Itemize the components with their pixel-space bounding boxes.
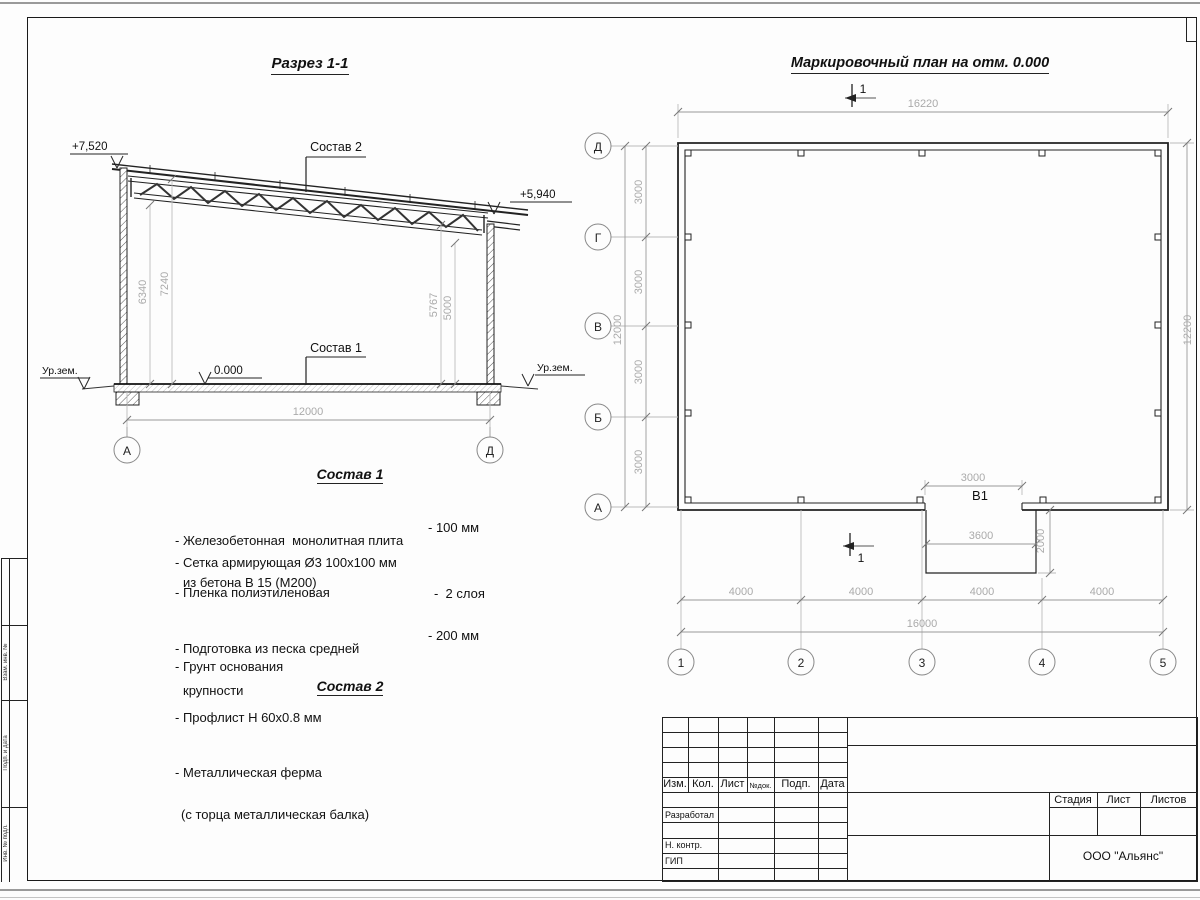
axis-row-a: А <box>594 501 602 515</box>
elev-0000: 0.000 <box>199 365 262 384</box>
foundation-left <box>116 392 139 405</box>
sostav2-item2: - Металлическая ферма (с торца металличе… <box>175 738 369 822</box>
dim-4000-2: 4000 <box>849 586 873 598</box>
tb-header-podp: Подп. <box>774 778 818 790</box>
svg-text:Состав 1: Состав 1 <box>310 341 362 355</box>
section-mark-top: 1 <box>845 82 876 107</box>
axis-bubble-d: Д <box>486 444 494 458</box>
plan-top-dim: 16220 <box>674 98 1172 138</box>
elev-7520: +7,520 <box>70 141 128 168</box>
dim-3000-opening: 3000 <box>961 472 985 484</box>
foundation-right <box>477 392 500 405</box>
dim-3600: 3600 <box>969 530 993 542</box>
dim-16220: 16220 <box>908 98 939 110</box>
dim-3000-2: 3000 <box>633 270 645 294</box>
tb-header-data: Дата <box>818 778 847 790</box>
section-mark-bottom: 1 <box>843 533 874 565</box>
sostav2-item1: - Профлист Н 60х0.8 мм <box>175 711 322 725</box>
ground-label-left: Ур.зем. <box>40 365 90 389</box>
dim-3000-1: 3000 <box>633 180 645 204</box>
svg-text:Ур.зем.: Ур.зем. <box>42 365 78 377</box>
dim-4000-1: 4000 <box>729 586 753 598</box>
dim-12000-section: 12000 <box>293 406 324 418</box>
axis-row-d: Д <box>594 140 602 154</box>
axis-col-5: 5 <box>1160 656 1167 670</box>
dim-3000-3: 3000 <box>633 360 645 384</box>
svg-text:Состав 2: Состав 2 <box>310 140 362 154</box>
sostav1-item3-value: - 2 слоя <box>434 586 485 601</box>
sostav1-item4-value: - 200 мм <box>428 628 479 643</box>
svg-text:+5,940: +5,940 <box>520 189 556 201</box>
svg-text:1: 1 <box>858 551 865 565</box>
dim-16000: 16000 <box>907 618 938 630</box>
dim-2000: 2000 <box>1035 529 1047 553</box>
plan-wall-inner <box>685 150 1161 503</box>
axis-row-v: В <box>594 320 602 334</box>
axis-bubble-a: А <box>123 444 131 458</box>
tb-stage: Стадия <box>1049 794 1097 806</box>
section-span-dim: 12000 <box>123 392 494 427</box>
svg-text:0.000: 0.000 <box>214 365 243 377</box>
sostav2-leader: Состав 2 <box>306 140 366 192</box>
dim-7240: 7240 <box>159 272 171 296</box>
dim-12200: 12200 <box>1182 315 1194 346</box>
tb-role-gip: ГИП <box>665 856 683 866</box>
column-marks <box>685 150 1161 503</box>
floor-slab <box>114 384 501 392</box>
tb-header-ndok: №док. <box>747 781 774 790</box>
plan-bottom-grid: 4000 4000 4000 4000 16000 1 2 3 4 5 <box>668 510 1176 675</box>
sostav1-item2: - Сетка армирующая Ø3 100х100 мм <box>175 556 397 570</box>
svg-text:1: 1 <box>860 82 867 96</box>
axis-col-4: 4 <box>1039 656 1046 670</box>
plan-left-grid: 12000 3000 3000 3000 3000 Д Г В Б А <box>585 133 678 520</box>
axis-col-3: 3 <box>919 656 926 670</box>
tb-role-razrabotal: Разработал <box>665 810 714 820</box>
plan-drawing: 1 1 16220 12200 <box>585 82 1194 675</box>
sostav2-title: Состав 2 <box>295 678 405 696</box>
drawing-sheet: { "drawing": { "section": { "title": "Ра… <box>0 0 1200 900</box>
axis-row-b: Б <box>594 411 602 425</box>
dim-5000: 5000 <box>442 296 454 320</box>
wall-left <box>120 168 127 387</box>
sostav1-title: Состав 1 <box>295 466 405 484</box>
sostav1-item1: - Железобетонная монолитная плита из бет… <box>175 506 403 590</box>
opening-label-b1: В1 <box>972 488 988 503</box>
axis-row-g: Г <box>595 231 602 245</box>
tb-header-kol: Кол. <box>688 778 718 790</box>
axis-col-2: 2 <box>798 656 805 670</box>
title-block: Изм. Кол. Лист №док. Подп. Дата Разработ… <box>662 717 1198 882</box>
sostav1-leader: Состав 1 <box>306 341 366 385</box>
ground-label-right: Ур.зем. <box>522 362 585 386</box>
sostav1-item5: - Грунт основания <box>175 660 283 674</box>
wall-right <box>487 224 494 387</box>
tb-company: ООО "Альянс" <box>1049 849 1197 863</box>
plan-wall-outer <box>678 143 1168 510</box>
section-axis-bubbles: А Д <box>114 427 503 463</box>
dim-5767: 5767 <box>428 293 440 317</box>
elev-5940: +5,940 <box>488 189 572 214</box>
dim-4000-4: 4000 <box>1090 586 1114 598</box>
tb-header-izm: Изм. <box>662 778 688 790</box>
section-drawing: 6340 7240 5767 5000 12000 А Д +7,520 <box>40 140 585 463</box>
svg-text:+7,520: +7,520 <box>72 141 108 153</box>
ground-line-left <box>82 386 114 389</box>
axis-col-1: 1 <box>678 656 685 670</box>
dim-3000-4: 3000 <box>633 450 645 474</box>
tb-role-nkontr: Н. контр. <box>665 840 702 850</box>
sostav1-item3: - Пленка полиэтиленовая <box>175 586 330 600</box>
dim-6340: 6340 <box>137 280 149 304</box>
tb-list: Лист <box>1097 794 1140 806</box>
tb-header-list: Лист <box>718 778 747 790</box>
tb-listov: Листов <box>1140 794 1197 806</box>
dim-12000-plan: 12000 <box>612 315 624 346</box>
plan-right-dim: 12200 <box>1170 139 1194 514</box>
ground-line-right <box>501 386 538 389</box>
dim-4000-3: 4000 <box>970 586 994 598</box>
sostav1-item1-value: - 100 мм <box>428 520 479 535</box>
svg-text:Ур.зем.: Ур.зем. <box>537 362 573 374</box>
plan-opening: 3000 В1 3600 2000 <box>921 472 1056 577</box>
